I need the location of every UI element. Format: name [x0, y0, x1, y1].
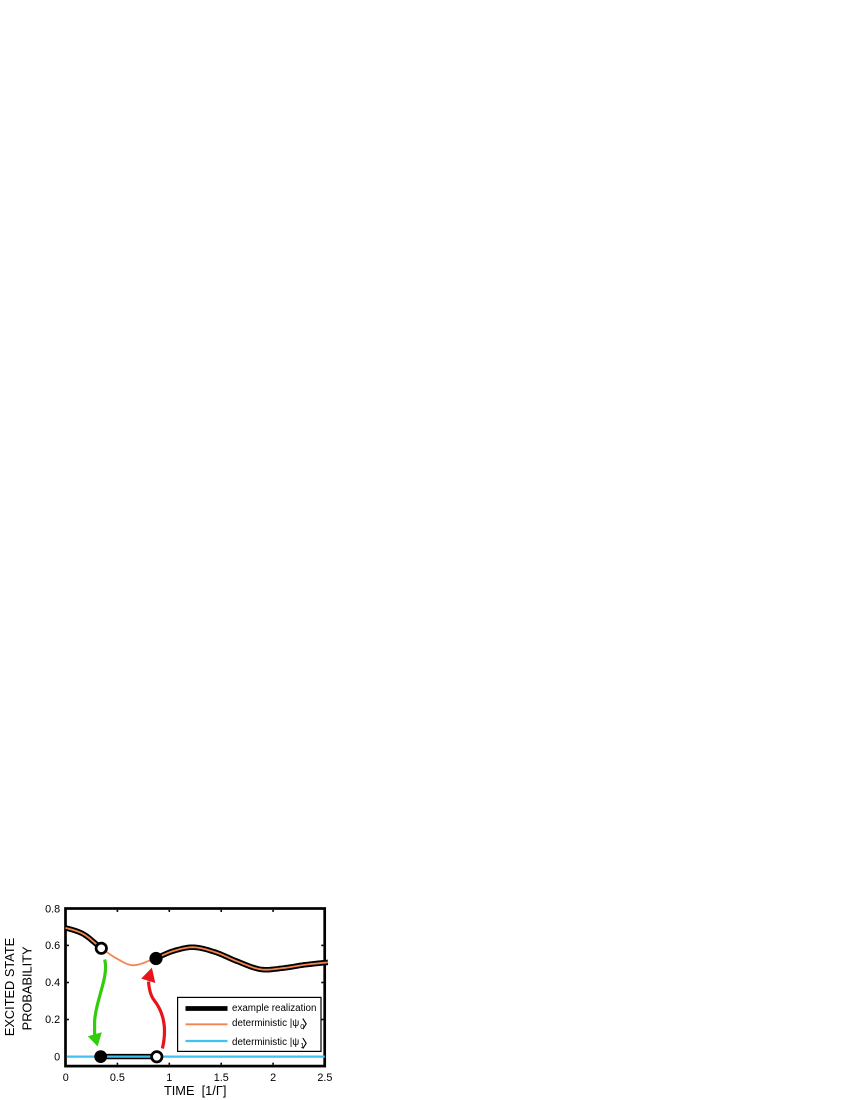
svg-text:0.4: 0.4 — [45, 977, 60, 989]
svg-text:2: 2 — [270, 1072, 276, 1084]
svg-text:EXCITED STATE: EXCITED STATE — [2, 938, 17, 1036]
svg-text:TIME [1/Γ]: TIME [1/Γ] — [164, 1083, 227, 1098]
svg-text:0.8: 0.8 — [45, 904, 60, 916]
svg-text:0: 0 — [63, 1072, 69, 1084]
svg-text:0.6: 0.6 — [45, 940, 60, 952]
svg-text:deterministic |ψ: deterministic |ψ — [232, 1037, 299, 1048]
svg-text:PROBABILITY: PROBABILITY — [19, 946, 34, 1030]
svg-text:0.5: 0.5 — [110, 1072, 125, 1084]
svg-text:0: 0 — [300, 1022, 304, 1031]
svg-text:0.2: 0.2 — [45, 1014, 60, 1026]
svg-text:example realization: example realization — [232, 1003, 316, 1014]
svg-text:1: 1 — [300, 1041, 304, 1050]
svg-text:deterministic |ψ: deterministic |ψ — [232, 1018, 299, 1029]
svg-text:0: 0 — [54, 1051, 60, 1063]
svg-text:2.5: 2.5 — [317, 1072, 332, 1084]
